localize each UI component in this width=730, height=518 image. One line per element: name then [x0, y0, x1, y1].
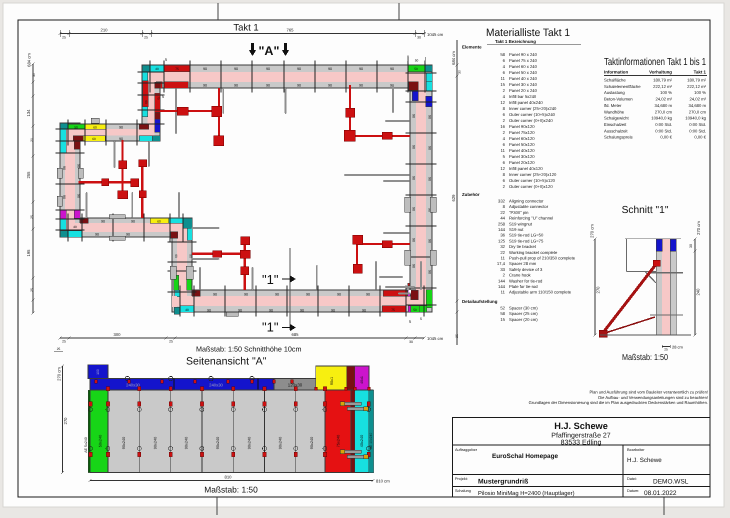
svg-text:684 cm: 684 cm	[27, 53, 32, 67]
svg-text:50x240: 50x240	[99, 435, 103, 447]
svg-text:Aligning connector: Aligning connector	[509, 199, 544, 204]
svg-text:50: 50	[415, 59, 419, 63]
svg-text:0:00 Std.: 0:00 Std.	[655, 128, 672, 133]
svg-text:144: 144	[498, 278, 506, 283]
svg-text:90: 90	[119, 125, 123, 129]
svg-text:0:00 Std.: 0:00 Std.	[689, 128, 706, 133]
svg-text:Elemente: Elemente	[462, 45, 482, 50]
svg-text:90: 90	[412, 114, 416, 118]
svg-text:270,0 cm: 270,0 cm	[689, 109, 707, 114]
svg-text:1045 cm: 1045 cm	[427, 32, 444, 37]
svg-text:90: 90	[131, 219, 135, 223]
svg-text:75x240: 75x240	[337, 435, 341, 447]
svg-text:100: 100	[96, 369, 100, 375]
svg-text:90: 90	[238, 309, 242, 313]
svg-text:240: 240	[696, 288, 701, 296]
svg-text:90: 90	[428, 177, 432, 181]
svg-text:40: 40	[185, 308, 189, 312]
svg-text:Maßstab: 1:50: Maßstab: 1:50	[622, 352, 668, 362]
svg-text:Adjustable connector: Adjustable connector	[509, 204, 549, 209]
svg-text:DEMO.WSL: DEMO.WSL	[653, 479, 689, 486]
svg-text:255: 255	[26, 171, 31, 179]
svg-text:25: 25	[144, 36, 148, 40]
svg-text:Schalung: Schalung	[455, 489, 471, 493]
svg-text:134: 134	[26, 109, 31, 117]
svg-text:S19 tie-rod LG=50: S19 tie-rod LG=50	[509, 233, 544, 238]
svg-text:Spacer 28 mm: Spacer 28 mm	[509, 261, 537, 266]
svg-text:Taktinformationen Takt 1 bis: Taktinformationen Takt 1 bis 1	[604, 57, 706, 68]
svg-text:Schalungspreis: Schalungspreis	[604, 135, 633, 140]
svg-text:90: 90	[174, 254, 178, 258]
svg-text:Push-pull prop of 210/350 comp: Push-pull prop of 210/350 complete	[509, 256, 576, 261]
svg-text:Beton-Volumen: Beton-Volumen	[604, 97, 633, 102]
svg-text:90: 90	[412, 264, 416, 268]
svg-text:Spacer (25 cm): Spacer (25 cm)	[509, 311, 538, 316]
svg-text:180,79 m²: 180,79 m²	[653, 78, 672, 83]
svg-text:S19 nut: S19 nut	[509, 227, 524, 232]
svg-text:44: 44	[500, 216, 505, 221]
svg-text:144: 144	[498, 284, 506, 289]
svg-text:Auslastung: Auslastung	[604, 90, 625, 95]
svg-text:16: 16	[500, 124, 505, 129]
svg-text:11: 11	[501, 148, 506, 153]
svg-text:765: 765	[287, 28, 295, 33]
svg-text:58: 58	[500, 311, 505, 316]
svg-text:32: 32	[500, 244, 505, 249]
svg-text:Maßstab: 1:50 Schnitthöhe 10: Maßstab: 1:50 Schnitthöhe 10cm	[196, 345, 301, 354]
svg-text:90: 90	[62, 166, 66, 170]
svg-text:Maßstab: 1:50: Maßstab: 1:50	[204, 485, 258, 495]
svg-text:Ausschalzeit: Ausschalzeit	[604, 128, 628, 133]
svg-text:222,12 m²: 222,12 m²	[687, 84, 706, 89]
svg-text:90: 90	[331, 309, 335, 313]
svg-text:90: 90	[306, 292, 310, 296]
svg-text:22: 22	[500, 210, 505, 215]
svg-text:270: 270	[63, 417, 68, 425]
svg-text:90: 90	[300, 309, 304, 313]
svg-text:Outer corner (0+0)x120: Outer corner (0+0)x120	[509, 184, 553, 189]
svg-text:10940,0 kg: 10940,0 kg	[685, 116, 706, 121]
svg-text:90x240: 90x240	[247, 437, 251, 449]
svg-text:Adjustable arm 110/150 complet: Adjustable arm 110/150 complete	[509, 290, 572, 295]
svg-text:40: 40	[73, 225, 77, 229]
svg-text:90: 90	[266, 67, 270, 71]
svg-text:Inner corner (25+20)x240: Inner corner (25+20)x240	[509, 106, 557, 111]
svg-text:90: 90	[144, 100, 148, 104]
svg-text:90: 90	[390, 67, 394, 71]
svg-text:0:00 Std.: 0:00 Std.	[655, 122, 672, 127]
svg-text:90: 90	[412, 176, 416, 180]
svg-text:Dry tie bracket: Dry tie bracket	[509, 244, 537, 249]
svg-text:Panel 30x120: Panel 30x120	[509, 154, 535, 159]
svg-text:Inner corner (25+20)x120: Inner corner (25+20)x120	[509, 172, 557, 177]
svg-text:Crane hook: Crane hook	[509, 273, 532, 278]
svg-text:Schalelementfläche: Schalelementfläche	[604, 84, 641, 89]
svg-text:90: 90	[126, 233, 130, 237]
svg-text:332: 332	[498, 199, 506, 204]
svg-text:Information: Information	[604, 70, 628, 75]
svg-text:90: 90	[412, 145, 416, 149]
svg-text:30: 30	[458, 70, 462, 74]
svg-text:Panel 30 x 240: Panel 30 x 240	[509, 82, 538, 87]
svg-text:90: 90	[297, 84, 301, 88]
svg-text:Bearbeiter: Bearbeiter	[627, 448, 645, 452]
svg-text:Panel 20x120: Panel 20x120	[509, 160, 535, 165]
svg-text:270 cm: 270 cm	[590, 224, 595, 238]
svg-text:Takt 1: Takt 1	[233, 23, 258, 34]
svg-text:08.01.2022: 08.01.2022	[644, 490, 677, 497]
svg-text:11: 11	[501, 256, 506, 261]
svg-text:60: 60	[92, 137, 96, 141]
svg-text:EuroSchal Homepage: EuroSchal Homepage	[492, 453, 558, 460]
svg-text:90: 90	[269, 309, 273, 313]
svg-text:11: 11	[501, 76, 506, 81]
svg-text:H.J. Schewe: H.J. Schewe	[554, 421, 608, 431]
svg-text:Seitenansicht "A": Seitenansicht "A"	[186, 356, 267, 368]
svg-text:0:00 Std.: 0:00 Std.	[689, 122, 706, 127]
svg-text:258: 258	[498, 221, 506, 226]
svg-text:Projekt:: Projekt:	[455, 477, 468, 481]
svg-text:25: 25	[62, 36, 66, 40]
svg-text:30: 30	[409, 340, 413, 344]
svg-text:33: 33	[500, 267, 505, 272]
svg-text:34,680 m: 34,680 m	[655, 103, 673, 108]
svg-text:Einschalzeit: Einschalzeit	[604, 122, 627, 127]
svg-text:0,00 €: 0,00 €	[660, 135, 672, 140]
svg-text:Infill panel 40x120: Infill panel 40x120	[509, 166, 543, 171]
svg-text:75: 75	[175, 67, 179, 71]
svg-text:270: 270	[596, 286, 601, 294]
svg-text:75: 75	[156, 96, 160, 100]
svg-text:90: 90	[76, 194, 80, 198]
svg-text:270 cm: 270 cm	[696, 221, 701, 235]
svg-text:90: 90	[203, 84, 207, 88]
svg-text:90: 90	[297, 67, 301, 71]
svg-text:810 cm: 810 cm	[376, 479, 390, 484]
svg-text:125: 125	[498, 238, 506, 243]
svg-text:10940,0 kg: 10940,0 kg	[651, 116, 672, 121]
svg-text:685: 685	[292, 332, 300, 337]
svg-text:90: 90	[359, 84, 363, 88]
svg-text:100 %: 100 %	[660, 90, 672, 95]
svg-text:Panel 40 x 240: Panel 40 x 240	[509, 76, 538, 81]
svg-text:90: 90	[362, 309, 366, 313]
svg-text:28 cm: 28 cm	[672, 345, 684, 350]
svg-text:90: 90	[95, 233, 99, 237]
svg-text:Schalgewicht: Schalgewicht	[604, 116, 630, 121]
svg-text:11: 11	[501, 290, 506, 295]
svg-text:90: 90	[412, 207, 416, 211]
svg-text:AE 5x240: AE 5x240	[84, 437, 88, 453]
svg-text:40: 40	[155, 67, 159, 71]
svg-text:25: 25	[169, 340, 173, 344]
svg-text:50: 50	[414, 67, 418, 71]
svg-text:Detailaufstellung: Detailaufstellung	[462, 299, 498, 304]
svg-text:180,79 m²: 180,79 m²	[687, 78, 706, 83]
svg-text:90: 90	[266, 84, 270, 88]
svg-text:12: 12	[500, 166, 505, 171]
svg-text:270 cm: 270 cm	[57, 367, 62, 381]
svg-text:Schalfläche: Schalfläche	[604, 78, 626, 83]
svg-text:Washer for tie-rod: Washer for tie-rod	[509, 278, 543, 283]
svg-text:195: 195	[26, 249, 31, 257]
svg-text:Panel 20 x 240: Panel 20 x 240	[509, 88, 538, 93]
svg-text:270,0 cm: 270,0 cm	[655, 109, 673, 114]
svg-text:Datum:: Datum:	[627, 489, 639, 493]
svg-text:90: 90	[275, 292, 279, 296]
svg-text:22: 22	[500, 250, 505, 255]
svg-text:40x1: 40x1	[360, 376, 364, 384]
svg-text:90: 90	[428, 115, 432, 119]
svg-text:Spacer (20 cm): Spacer (20 cm)	[509, 317, 538, 322]
svg-text:Spacer (30 cm): Spacer (30 cm)	[509, 306, 538, 311]
svg-text:90x240: 90x240	[122, 437, 126, 449]
svg-text:222,12 m²: 222,12 m²	[653, 84, 672, 89]
svg-text:40x240: 40x240	[360, 435, 364, 447]
svg-text:90x240: 90x240	[279, 437, 283, 449]
svg-text:Outer corner (10+5)x120: Outer corner (10+5)x120	[509, 178, 556, 183]
svg-text:90: 90	[76, 164, 80, 168]
svg-text:S19 wingnut: S19 wingnut	[509, 221, 533, 226]
svg-text:Plate for tie-rod: Plate for tie-rod	[509, 284, 538, 289]
svg-text:90: 90	[244, 292, 248, 296]
svg-text:Grundlagen der Dimensionierung: Grundlagen der Dimensionierung sind die …	[529, 400, 708, 405]
svg-text:90: 90	[366, 292, 370, 296]
svg-text:12: 12	[500, 100, 505, 105]
svg-text:34,680 m: 34,680 m	[689, 103, 707, 108]
svg-text:"A": "A"	[259, 44, 280, 58]
svg-text:810: 810	[225, 475, 233, 480]
svg-text:100 %: 100 %	[694, 90, 706, 95]
svg-text:90x1: 90x1	[330, 377, 334, 385]
svg-text:Panel 60x120: Panel 60x120	[509, 136, 535, 141]
svg-text:H.J. Schewe: H.J. Schewe	[627, 457, 662, 464]
svg-text:Reinforcing "U" channel: Reinforcing "U" channel	[509, 216, 553, 221]
svg-text:90: 90	[101, 219, 105, 223]
svg-text:24,02 m³: 24,02 m³	[689, 97, 706, 102]
svg-text:52: 52	[500, 306, 505, 311]
svg-text:36: 36	[500, 233, 505, 238]
svg-text:75: 75	[391, 308, 395, 312]
svg-text:50: 50	[413, 308, 417, 312]
svg-text:Auftraggeber: Auftraggeber	[455, 448, 478, 452]
svg-text:90: 90	[428, 239, 432, 243]
svg-text:60: 60	[157, 219, 161, 223]
svg-text:Panel 90x120: Panel 90x120	[509, 124, 535, 129]
svg-text:240x30: 240x30	[209, 382, 223, 387]
svg-text:Zubehör: Zubehör	[462, 192, 480, 197]
svg-text:90: 90	[213, 292, 217, 296]
svg-text:300: 300	[114, 332, 122, 337]
svg-text:210: 210	[101, 28, 109, 33]
svg-text:20: 20	[30, 138, 34, 142]
svg-text:Panel 40x120: Panel 40x120	[509, 148, 535, 153]
svg-text:90: 90	[428, 146, 432, 150]
svg-text:Takt 1: Takt 1	[694, 70, 707, 75]
svg-text:"1": "1"	[262, 320, 279, 335]
svg-text:Panel 60 x 240: Panel 60 x 240	[509, 64, 538, 69]
svg-text:90x240: 90x240	[153, 437, 157, 449]
svg-text:25: 25	[30, 288, 34, 292]
svg-text:Pilosio MiniMag H=2400 (Hauptl: Pilosio MiniMag H=2400 (Hauptlager)	[478, 490, 575, 497]
svg-text:90: 90	[328, 67, 332, 71]
svg-text:Plan und Ausführung sind vom B: Plan und Ausführung sind vom Bauleiter v…	[589, 390, 708, 395]
svg-text:Panel 50 x 240: Panel 50 x 240	[509, 70, 538, 75]
svg-text:90: 90	[359, 67, 363, 71]
svg-text:Wandhöhe: Wandhöhe	[604, 109, 625, 114]
svg-text:30: 30	[689, 244, 693, 248]
svg-text:Materialliste Takt 1: Materialliste Takt 1	[486, 27, 570, 39]
svg-text:Panel 75x120: Panel 75x120	[509, 130, 535, 135]
svg-text:25: 25	[57, 347, 61, 351]
svg-text:Working bracket complete: Working bracket complete	[509, 250, 558, 255]
svg-text:30: 30	[32, 73, 36, 77]
svg-text:Datei:: Datei:	[627, 477, 637, 481]
svg-text:15: 15	[500, 317, 505, 322]
svg-text:90: 90	[328, 84, 332, 88]
svg-text:83533 Edling: 83533 Edling	[561, 438, 602, 446]
svg-text:Schnitt "1": Schnitt "1"	[622, 205, 669, 216]
svg-text:Outer corner (10+5)x240: Outer corner (10+5)x240	[509, 112, 556, 117]
svg-text:Panel 75 x 240: Panel 75 x 240	[509, 58, 538, 63]
svg-text:5: 5	[420, 317, 422, 321]
svg-text:90: 90	[62, 195, 66, 199]
svg-text:15: 15	[500, 82, 505, 87]
svg-text:50: 50	[74, 125, 78, 129]
svg-text:30: 30	[417, 36, 421, 40]
svg-text:Panel 50x120: Panel 50x120	[509, 142, 535, 147]
svg-text:58: 58	[500, 52, 505, 57]
svg-text:lfd. Meter: lfd. Meter	[604, 103, 622, 108]
svg-text:90: 90	[207, 309, 211, 313]
svg-text:90: 90	[412, 238, 416, 242]
svg-text:90x240: 90x240	[185, 437, 189, 449]
svg-text:Die Aufbau- und Verwendungsanl: Die Aufbau- und Verwendungsanleitungen s…	[598, 395, 708, 400]
svg-text:Takt 1 Bezeichnung: Takt 1 Bezeichnung	[495, 39, 536, 44]
svg-text:90: 90	[234, 67, 238, 71]
svg-text:629: 629	[451, 194, 456, 202]
svg-text:Mustergrundriß: Mustergrundriß	[478, 479, 528, 486]
svg-text:25: 25	[664, 348, 668, 352]
svg-text:1045 cm: 1045 cm	[427, 336, 444, 341]
svg-text:Infill bar 5x240: Infill bar 5x240	[509, 94, 537, 99]
svg-text:144: 144	[498, 227, 506, 232]
svg-text:90: 90	[337, 292, 341, 296]
svg-text:25: 25	[455, 334, 459, 338]
svg-text:90: 90	[234, 84, 238, 88]
svg-text:25: 25	[30, 215, 34, 219]
svg-text:90: 90	[428, 270, 432, 274]
svg-text:684 cm: 684 cm	[451, 51, 456, 65]
svg-text:Vorhaltung: Vorhaltung	[649, 70, 672, 75]
svg-text:90: 90	[203, 67, 207, 71]
svg-text:Outer corner (0+0)x240: Outer corner (0+0)x240	[509, 118, 553, 123]
svg-text:Pfaffingerstraße 27: Pfaffingerstraße 27	[551, 432, 611, 440]
svg-text:Infill panel 40x240: Infill panel 40x240	[509, 100, 543, 105]
svg-text:S19 tie-rod LG=75: S19 tie-rod LG=75	[509, 238, 544, 243]
svg-text:25: 25	[62, 340, 66, 344]
svg-text:Panel 90 x 240: Panel 90 x 240	[509, 52, 538, 57]
svg-text:Safety device of 3: Safety device of 3	[509, 267, 543, 272]
svg-text:90x240: 90x240	[310, 437, 314, 449]
svg-text:17,4: 17,4	[497, 261, 506, 266]
svg-text:"P300" pin: "P300" pin	[509, 210, 529, 215]
svg-text:0,00 €: 0,00 €	[694, 135, 706, 140]
svg-text:60: 60	[93, 125, 97, 129]
svg-text:90x240: 90x240	[216, 437, 220, 449]
svg-text:"1": "1"	[262, 272, 279, 287]
svg-text:24,02 m³: 24,02 m³	[655, 97, 672, 102]
